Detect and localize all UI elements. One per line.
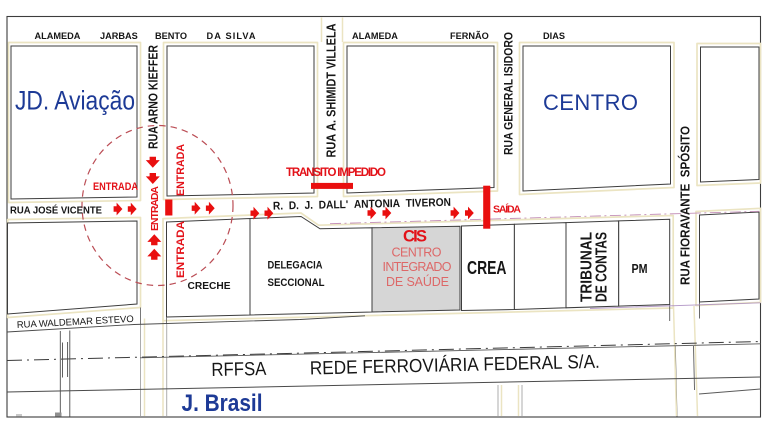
svg-text:SAÍDA: SAÍDA: [493, 203, 521, 216]
svg-text:FERNÃO: FERNÃO: [450, 31, 489, 41]
svg-text:CENTRO: CENTRO: [543, 90, 638, 115]
svg-text:ALAMEDA: ALAMEDA: [35, 31, 81, 41]
svg-text:DE SAÚDE: DE SAÚDE: [386, 274, 449, 289]
svg-text:ENTRADA: ENTRADA: [149, 186, 161, 231]
svg-text:TRANSITO IMPEDIDO: TRANSITO IMPEDIDO: [286, 167, 386, 179]
svg-text:CENTRO: CENTRO: [392, 246, 442, 260]
svg-text:J. Brasil: J. Brasil: [182, 390, 263, 417]
svg-text:DE CONTAS: DE CONTAS: [594, 232, 611, 302]
svg-text:JD. Aviação: JD. Aviação: [15, 86, 135, 116]
svg-text:RUA FIORAVANTE SPÓSITO: RUA FIORAVANTE SPÓSITO: [678, 126, 693, 285]
svg-text:SECCIONAL: SECCIONAL: [268, 277, 325, 289]
svg-text:DIAS: DIAS: [543, 31, 565, 41]
svg-text:INTEGRADO: INTEGRADO: [383, 260, 452, 274]
svg-text:DA SILVA: DA SILVA: [207, 31, 256, 41]
svg-text:CRECHE: CRECHE: [188, 281, 231, 292]
svg-text:RUA JOSÉ VICENTE: RUA JOSÉ VICENTE: [10, 204, 102, 217]
svg-text:RUA ARNO KIEFFER: RUA ARNO KIEFFER: [147, 45, 161, 149]
svg-text:ENTRADA: ENTRADA: [93, 181, 138, 193]
svg-text:RFFSA: RFFSA: [211, 359, 267, 381]
svg-text:ENTRADA: ENTRADA: [175, 221, 187, 278]
svg-text:CREA: CREA: [467, 258, 507, 278]
svg-text:PM: PM: [632, 262, 648, 276]
svg-text:RUA A. SHIMIDT VILLELA: RUA A. SHIMIDT VILLELA: [324, 23, 339, 158]
svg-text:RUA GENERAL ISIDORO: RUA GENERAL ISIDORO: [502, 32, 516, 155]
svg-text:DELEGACIA: DELEGACIA: [268, 260, 323, 272]
svg-text:JARBAS: JARBAS: [100, 31, 138, 41]
svg-text:CIS: CIS: [403, 228, 427, 246]
svg-text:ENTRADA: ENTRADA: [175, 144, 187, 196]
svg-text:ALAMEDA: ALAMEDA: [352, 31, 398, 41]
svg-text:BENTO: BENTO: [155, 31, 187, 41]
